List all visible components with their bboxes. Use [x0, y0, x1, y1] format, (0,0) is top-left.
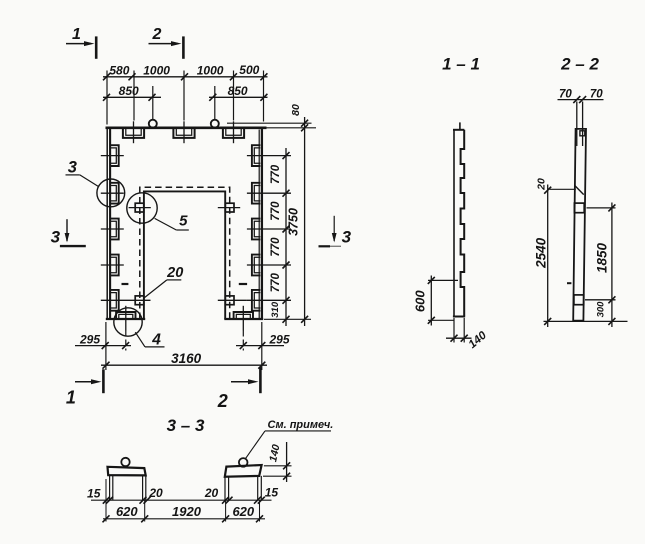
svg-text:70: 70 [590, 89, 603, 101]
svg-text:15: 15 [265, 486, 279, 500]
svg-text:770: 770 [270, 201, 282, 221]
svg-text:300: 300 [596, 301, 607, 318]
svg-text:3: 3 [342, 228, 352, 247]
svg-text:20: 20 [166, 265, 183, 281]
svg-text:1: 1 [72, 26, 81, 43]
svg-text:2540: 2540 [533, 237, 548, 269]
svg-text:3 – 3: 3 – 3 [167, 416, 205, 435]
svg-text:500: 500 [239, 63, 259, 77]
svg-text:1 – 1: 1 – 1 [442, 54, 480, 73]
svg-text:5: 5 [179, 213, 188, 230]
svg-text:1: 1 [66, 388, 76, 408]
svg-text:2: 2 [152, 26, 162, 43]
svg-text:850: 850 [228, 84, 248, 98]
svg-text:3750: 3750 [286, 208, 300, 236]
svg-text:3: 3 [51, 228, 61, 247]
svg-text:3160: 3160 [171, 351, 202, 366]
svg-text:850: 850 [119, 84, 139, 98]
svg-text:770: 770 [270, 237, 282, 257]
svg-text:1850: 1850 [595, 242, 610, 273]
svg-text:1000: 1000 [143, 64, 170, 78]
svg-text:См. примеч.: См. примеч. [268, 419, 334, 431]
svg-text:1000: 1000 [197, 64, 224, 78]
svg-text:3: 3 [68, 159, 77, 177]
svg-text:1920: 1920 [172, 504, 202, 519]
svg-text:770: 770 [270, 273, 282, 293]
svg-text:310: 310 [270, 301, 281, 318]
svg-text:20: 20 [535, 178, 547, 191]
svg-text:770: 770 [270, 164, 282, 184]
svg-text:620: 620 [116, 504, 138, 519]
svg-text:4: 4 [151, 332, 161, 349]
svg-text:295: 295 [268, 332, 289, 346]
svg-text:80: 80 [290, 104, 302, 116]
svg-text:2: 2 [217, 391, 228, 411]
svg-text:295: 295 [79, 332, 100, 346]
svg-text:70: 70 [559, 89, 572, 101]
svg-text:20: 20 [148, 486, 163, 500]
svg-text:620: 620 [232, 504, 254, 519]
svg-text:20: 20 [204, 486, 219, 500]
svg-text:600: 600 [413, 290, 428, 312]
svg-text:2 – 2: 2 – 2 [560, 54, 599, 73]
svg-text:15: 15 [87, 487, 101, 501]
svg-text:580: 580 [109, 63, 129, 77]
